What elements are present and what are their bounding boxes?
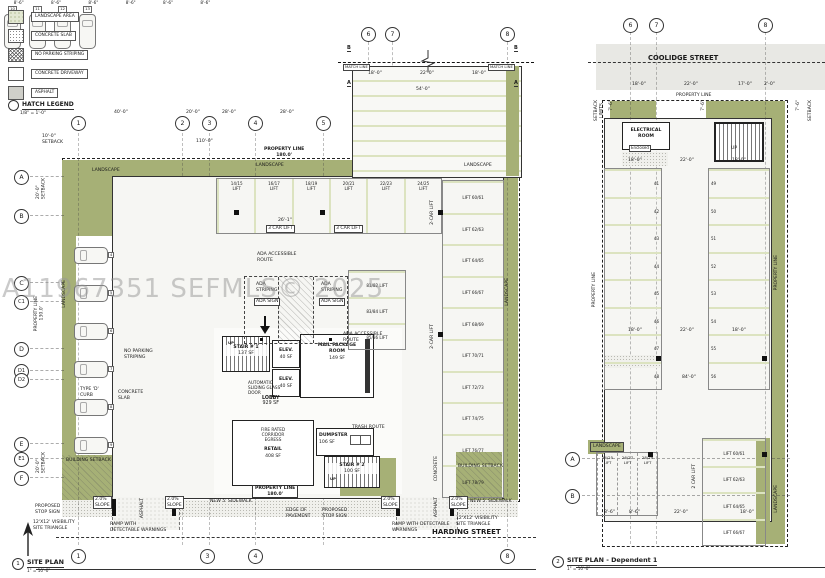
parking-stall: 56 [709,362,769,390]
grid-bubble: 8 [758,18,773,33]
street-name: COOLIDGE STREET [648,54,718,62]
annotation: 20'-0" SETBACK [36,178,47,199]
annotation: CONCRETE SLAB [118,390,143,401]
annotation: 18'-0" [628,158,642,164]
grid-bubble: E [14,437,29,452]
annotation: LANDSCAPE [62,280,68,308]
annotation: MATCH LINE [488,64,515,71]
landscape-strip-right [770,101,785,544]
grid-bubble: 6 [623,18,638,33]
annotation: PROPERTY LINE [592,272,598,307]
annotation: PROPOSED STOP SIGN [35,504,60,515]
annotation: 3 CAR LIFT [266,225,295,233]
grid-line-E [30,443,64,444]
view-number-bubble: 2 [552,556,564,568]
landscape-strip-right [502,176,518,500]
annotation: 2.0% SLOPE [449,496,468,509]
annotation: ADA SIGN [319,298,345,306]
stall-number: 5 [108,290,114,297]
parking-stall: LIFT 78/79 [443,465,503,497]
annotation: Enclosed [629,145,651,152]
grid-bubble: F [14,471,29,486]
annotation: BUILDING SETBACK [66,458,111,464]
stall-dim: 8'-6" [187,0,224,5]
dumpster-room: DUMPSTER 106 SF [316,428,374,456]
ada-sign-marker [260,338,263,341]
trash-bin-icon [360,435,371,445]
stall-dim: 8'-6" [0,0,37,5]
annotation: PROPERTY LINE 180.0' [252,485,298,498]
legend-item-label: CONCRETE SLAB [31,31,76,41]
annotation: PROPERTY LINE [774,255,780,290]
lift-stall-column-right: LIFT 60/61LIFT 62/63LIFT 64/65LIFT 66/67… [442,180,504,498]
grid-bubble: E1 [14,452,29,467]
parking-stall: 18/19 LIFT [292,179,329,233]
annotation: 18'-0" [472,71,486,77]
grid-line-C [30,282,64,283]
stair-up-label: UP [330,476,336,481]
annotation: LANDSCAPE [505,278,511,306]
annotation: LANDSCAPE [774,485,780,513]
structural-column [438,210,443,215]
structural-column [648,452,653,457]
parking-stall: LIFT 62/63 [703,466,765,493]
section-marker: B [347,45,351,52]
car-icon [74,399,108,416]
grid-bubble: 4 [248,116,263,131]
annotation: PROPERTY LINE 180.0' [264,147,304,158]
parking-stall: 81/82 LIFT [349,271,405,297]
annotation: 18'-0" [632,82,646,88]
grid-bubble: D [14,342,29,357]
annotation: 18'-0" [740,510,754,516]
annotation: 22'-0" [680,328,694,334]
garage-north-wing [352,66,522,178]
grid-line-D1 [30,370,64,371]
north-arrow-icon [16,522,40,558]
title-rule [36,569,536,570]
annotation: 22'-0" [674,510,688,516]
annotation: 18'-0" [628,328,642,334]
parking-stall: 44 [605,252,661,280]
annotation: 2.0% SLOPE [165,496,184,509]
annotation: RAMP WITH DETECTABLE WARNINGS [392,522,450,533]
structural-column [762,356,767,361]
stall-dimensions: 8'-6"8'-6"8'-6"8'-6"8'-6"8'-6" [0,0,224,5]
parking-stall: 28/29 LIFT [637,453,657,515]
stall-number: 6 [108,328,114,335]
annotation: LANDSCAPE [590,442,624,452]
annotation: BUILDING SETBACK [458,464,503,470]
legend-item-label: NO PARKING STRIPING [31,50,88,60]
parking-stall: 48 [605,362,661,390]
stall-column-right: 4950515253545556 [708,168,770,390]
car-icon [74,285,108,302]
section-marker: A [514,80,518,87]
annotation: 28'-0" [280,110,294,116]
stall-number: 9 [108,442,114,449]
entry-arrow-stem [264,316,266,326]
grid-line-D2 [30,379,64,380]
annotation: 28'-0" [222,110,236,116]
annotation: MATCH LINE [343,64,370,71]
legend-scale: 1/8" = 1'-0" [20,111,74,116]
annotation: AUTOMATIC SLIDING GLASS DOOR [248,380,280,395]
legend-item-label: CONCRETE DRIVEWAY [31,69,88,79]
view-title: SITE PLAN - Dependent 1 [567,556,657,566]
parking-stall: LIFT 74/75 [443,402,503,434]
annotation: 8'-6" [604,510,615,516]
annotation: NEW 5' SIDEWALK [210,499,252,505]
legend-swatch-icon [8,67,24,81]
car-stall-column: 4 5 6 7 8 9 [74,236,118,464]
stair-up-label: UP [228,340,234,345]
parking-stall: 55 [709,334,769,362]
annotation: 2'-0" [764,82,775,88]
annotation: 20'-0" SETBACK [36,452,47,473]
annotation: 20'-0" [186,110,200,116]
grid-bubble: 8 [500,549,515,564]
view-scale: 1" = 10'-0" [567,566,657,571]
grid-bubble: 7 [649,18,664,33]
annotation: 18'-0" [732,158,746,164]
stall-column-bottom-right: LIFT 60/61LIFT 62/63LIFT 64/65LIFT 66/67 [702,438,766,546]
annotation: 22'-0" [420,71,434,77]
annotation: LANDSCAPE [464,163,492,169]
grid-bubble: A [14,170,29,185]
annotation: TYPE 'D' CURB [80,387,99,398]
annotation: 2-CAR LIFT [430,324,436,349]
grid-line-B [30,215,64,216]
annotation: 18'-0" [368,71,382,77]
grid-bubble: 7 [385,27,400,42]
annotation: 22'-0" [680,158,694,164]
structural-column [762,452,767,457]
elevator-1: ELEV. 40 SF [272,340,300,368]
grid-bubble: 1 [71,549,86,564]
grid-bubble: C [14,276,29,291]
street-centerline [56,537,536,538]
view-title: SITE PLAN [27,558,64,568]
annotation: SETBACK LIMITS [594,100,605,121]
car-icon [74,323,108,340]
hatch-legend-title: HATCH LEGEND 1/8" = 1'-0" [8,92,74,116]
detectable-warning-ramp [112,499,116,516]
annotation: 7'-6" [701,100,707,111]
parking-stall: LIFT 66/67 [703,519,765,546]
car-icon [74,247,108,264]
grid-bubble: A [565,452,580,467]
annotation: ADA SIGN [254,298,280,306]
annotation: EDGE OF PAVEMENT [286,508,310,519]
legend-item: LANDSCAPE AREA [8,10,88,23]
annotation: CONCRETE [434,456,440,481]
grid-line-D [30,348,64,349]
car-icon [74,437,108,454]
parking-stall: LIFT 62/63 [443,213,503,245]
parking-stall: LIFT 64/65 [443,244,503,276]
annotation: TRASH ROUTE [352,425,385,431]
ada-sign-marker [329,338,332,341]
structural-column [320,210,325,215]
parking-stall: LIFT 60/61 [443,181,503,213]
car-stall: 6 [74,312,118,350]
annotation: 26'-1" [278,218,292,224]
view-scale: 1" = 10'-0" [27,568,64,573]
parking-stall: 26/27 LIFT [617,453,637,515]
annotation: 2-CAR LIFT [430,200,436,225]
annotation: 8'-6" [629,510,640,516]
annotation: 22'-0" [684,82,698,88]
annotation: PROPOSED STOP SIGN [322,508,347,519]
annotation: 18'-0" [732,328,746,334]
grid-bubble: C1 [14,295,29,310]
legend-swatch-icon [8,48,24,62]
annotation: RAMP WITH DETECTABLE WARNINGS [110,522,166,533]
parking-stall: LIFT 72/73 [443,371,503,403]
annotation: LANDSCAPE [92,168,120,174]
grid-line-F [30,477,64,478]
parking-stall: 43 [605,224,661,252]
legend-item-label: LANDSCAPE AREA [31,12,79,22]
structural-column [234,210,239,215]
grid-bubble: 8 [500,27,515,42]
annotation: 2.0% SLOPE [381,496,400,509]
parking-stall: LIFT 70/71 [443,339,503,371]
grid-bubble: 5 [316,116,331,131]
legend-item: NO PARKING STRIPING [8,48,88,61]
parking-stall: 47 [605,334,661,362]
annotation: 7'-6" [796,100,802,111]
car-icon [74,361,108,378]
annotation: 54'-0" [416,87,430,93]
grid-bubble: 1 [71,116,86,131]
parking-stall: 49 [709,169,769,197]
grid-bubble: B [14,209,29,224]
hatch-legend: LANDSCAPE AREA CONCRETE SLAB NO PARKING … [8,10,88,105]
street-centerline [588,62,825,63]
retail-room: FIRE RATED CORRIDOR EGRESS RETAIL 408 SF [232,420,314,486]
legend-item: CONCRETE SLAB [8,29,88,42]
lift-stall-row-top: 14/15 LIFT16/17 LIFT18/19 LIFT20/21 LIFT… [216,178,442,234]
view-number-bubble: 1 [12,558,24,570]
parking-stall: 50 [709,197,769,225]
annotation: 7'-6" [609,100,615,111]
plan2-title-block: 2 SITE PLAN - Dependent 1 1" = 10'-0" [552,556,657,571]
annotation: NO PARKING STRIPING [124,349,153,360]
annotation: 12'X12' VISIBILITY SITE TRIANGLE [456,516,498,527]
stair-2: STAIR # 2100 SF [324,456,380,488]
legend-swatch-icon [8,10,24,24]
car-stall: 4 [74,236,118,274]
annotation: SETBACK [808,100,814,121]
landscape-block-topleft [62,176,112,236]
stall-dim: 8'-6" [37,0,74,5]
break-line-icon [418,50,438,72]
annotation: PROPERTY LINE 130.0' [34,296,45,331]
grid-bubble: 4 [248,549,263,564]
stall-column-left: 4142434445464748 [604,168,662,390]
annotation: ASPHALT [140,498,146,518]
structural-column [438,332,443,337]
parking-stall: 52 [709,252,769,280]
parking-stall: LIFT 64/65 [703,492,765,519]
annotation: 10'-0" SETBACK [42,134,63,145]
structural-column [656,356,661,361]
parking-stall: 83/84 LIFT [349,297,405,323]
parking-stall: LIFT 60/61 [703,439,765,466]
parking-stall: 51 [709,224,769,252]
annotation: 40'-0" [114,110,128,116]
car-stall: 5 [74,274,118,312]
annotation: 17'-0" [738,82,752,88]
detail-bubble-icon [8,100,19,111]
ada-access-aisle [278,277,312,343]
grid-line-A [30,176,64,177]
plan1-title-block: 1 SITE PLAN 1" = 10'-0" [12,558,64,573]
legend-swatch-icon [8,29,24,43]
grid-bubble: 3 [200,549,215,564]
parking-stall: LIFT 68/69 [443,307,503,339]
parking-stall: 41 [605,169,661,197]
annotation: ADA ACCESSIBLE ROUTE [257,252,296,263]
section-marker: A [347,80,351,87]
annotation: 84'-0" [682,375,696,381]
section-marker: B [514,45,518,52]
parking-stall: 42 [605,197,661,225]
stair [714,122,764,162]
parking-stall: 53 [709,279,769,307]
parking-stall: LIFT 66/67 [443,276,503,308]
annotation: UP [731,146,737,152]
grid-bubble: 6 [361,27,376,42]
legend-title: HATCH LEGEND [22,101,74,110]
stall-dim: 8'-6" [75,0,112,5]
annotation: 2.0% SLOPE [93,496,112,509]
annotation: ASPHALT [434,497,440,517]
parking-stall: 22/23 LIFT [366,179,403,233]
grid-bubble: D2 [14,373,29,388]
architectural-site-plan-sheet: LANDSCAPE AREA CONCRETE SLAB NO PARKING … [0,0,825,578]
car-stall: 7 [74,350,118,388]
parking-stall: 14/15 LIFT [217,179,254,233]
stall-dim: 8'-6" [112,0,149,5]
stall-number: 7 [108,366,114,373]
grid-bubble: B [565,489,580,504]
stall-row-bottom-left: 24/25 LIFT26/27 LIFT28/29 LIFT [596,452,658,516]
annotation: 2 CAR LIFT [692,464,698,489]
entry-arrow-icon [260,326,270,334]
annotation: 3 CAR LIFT [334,225,363,233]
annotation: NEW 5' SIDEWALK [470,499,512,505]
parking-stall: 45 [605,279,661,307]
lobby-label: LOBBY929 SF [262,396,280,406]
annotation: 110'-0" [196,139,213,145]
grid-bubble: 2 [175,116,190,131]
legend-item: CONCRETE DRIVEWAY [8,67,88,80]
grid-bubble: 3 [202,116,217,131]
annotation: LANDSCAPE [256,163,284,169]
annotation: ADA ACCESSIBLE ROUTE [343,332,382,343]
annotation: ADA STRIPING [256,282,277,293]
parking-stall: LIFT 76/77 [443,434,503,466]
annotation: PROPERTY LINE [676,93,711,99]
annotation: ADA STRIPING [321,282,342,293]
stall-dim: 8'-6" [149,0,186,5]
stall-number: 8 [108,404,114,411]
parking-stall: 24/25 LIFT [597,453,617,515]
stall-number: 4 [108,252,114,259]
